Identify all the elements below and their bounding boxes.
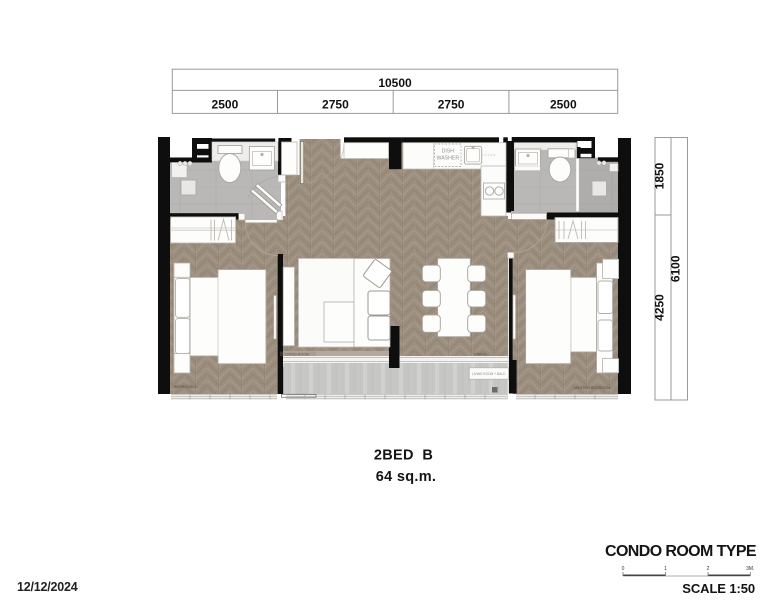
svg-text:64 sq.m.: 64 sq.m.: [376, 469, 436, 485]
svg-text:3M.: 3M.: [746, 566, 754, 572]
svg-text:2750: 2750: [322, 98, 349, 112]
svg-text:1: 1: [664, 566, 667, 572]
svg-text:0: 0: [622, 566, 625, 572]
svg-text:4250: 4250: [653, 294, 667, 321]
svg-text:6100: 6100: [668, 255, 682, 282]
svg-text:10500: 10500: [378, 76, 412, 90]
svg-text:2: 2: [707, 566, 710, 572]
svg-text:LIVING ROOM + BALC.: LIVING ROOM + BALC.: [472, 372, 506, 376]
svg-text:12/12/2024: 12/12/2024: [17, 580, 78, 594]
svg-text:1850: 1850: [653, 162, 667, 189]
svg-text:SCALE 1:50: SCALE 1:50: [682, 581, 755, 596]
svg-text:WASHER: WASHER: [437, 156, 460, 162]
svg-text:2500: 2500: [212, 98, 239, 112]
svg-text:CONDO ROOM TYPE: CONDO ROOM TYPE: [605, 543, 757, 560]
svg-text:DINING: DINING: [474, 352, 487, 356]
svg-text:2750: 2750: [438, 98, 465, 112]
svg-text:LIVING ROOM: LIVING ROOM: [285, 352, 309, 356]
svg-text:2500: 2500: [550, 98, 577, 112]
svg-text:DISH: DISH: [442, 149, 455, 155]
svg-text:MASTER BEDROOM: MASTER BEDROOM: [574, 386, 611, 390]
svg-text:2BED B: 2BED B: [374, 448, 433, 464]
svg-text:BEDROOM 2: BEDROOM 2: [174, 385, 197, 389]
